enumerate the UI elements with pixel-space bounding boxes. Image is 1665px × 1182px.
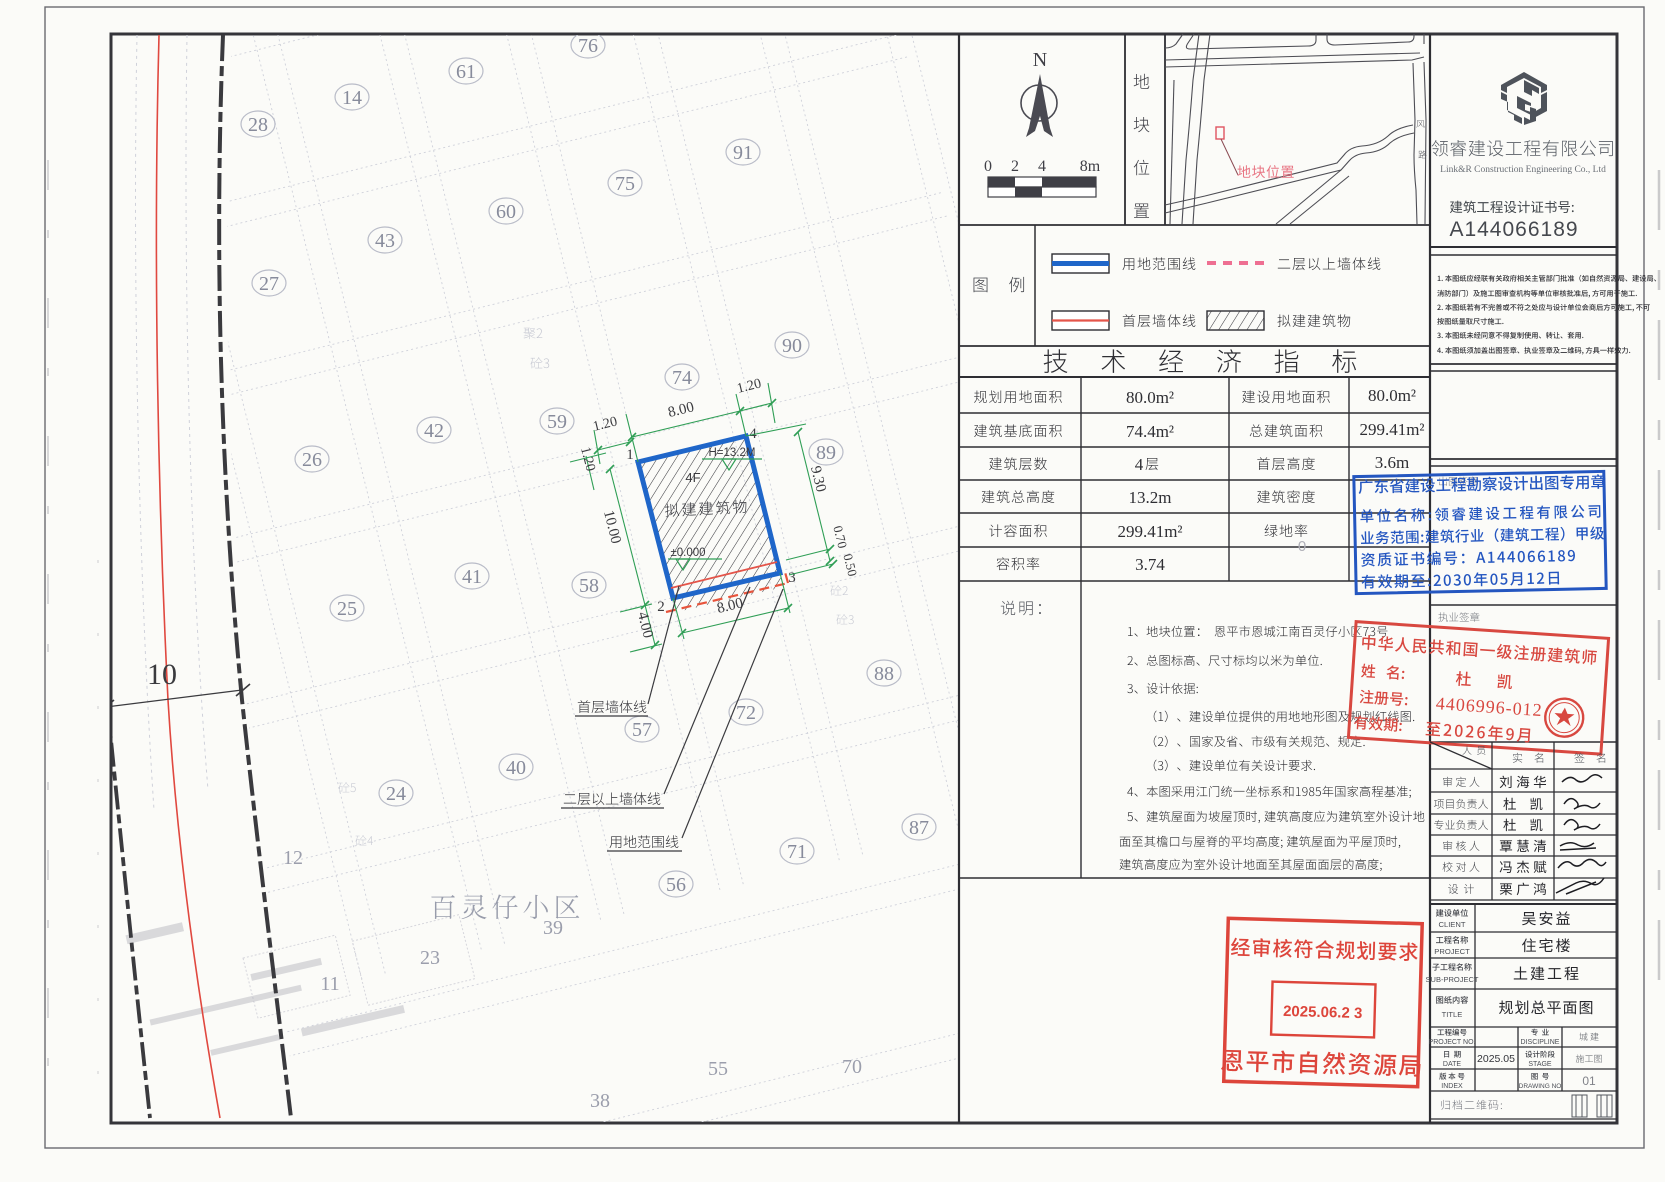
svg-text:71: 71 [787, 841, 807, 863]
svg-text:2025.06.2 3: 2025.06.2 3 [1283, 1003, 1363, 1022]
svg-text:40: 40 [506, 757, 526, 779]
svg-text:A144066189: A144066189 [1449, 218, 1578, 241]
svg-text:DATE: DATE [1443, 1061, 1461, 1068]
svg-text:41: 41 [462, 566, 482, 588]
svg-text:74.4m²: 74.4m² [1126, 422, 1174, 441]
svg-text:3.74: 3.74 [1135, 555, 1165, 574]
svg-text:4F: 4F [685, 470, 700, 485]
svg-text:72: 72 [736, 702, 756, 724]
svg-text:89: 89 [816, 442, 836, 464]
svg-text:11: 11 [320, 973, 339, 995]
svg-text:42: 42 [424, 420, 444, 442]
svg-text:2025.05: 2025.05 [1477, 1053, 1515, 1065]
svg-text:57: 57 [632, 719, 652, 741]
svg-text:0: 0 [1298, 538, 1306, 555]
svg-text:2: 2 [1011, 158, 1019, 175]
svg-text:H=13.2M: H=13.2M [709, 447, 756, 459]
svg-text:56: 56 [666, 874, 686, 896]
svg-text:76: 76 [578, 35, 598, 57]
svg-text:13.2m: 13.2m [1129, 488, 1172, 507]
svg-text:0: 0 [984, 158, 992, 175]
svg-text:SUB-PROJECT: SUB-PROJECT [1426, 975, 1479, 984]
svg-text:STAGE: STAGE [1528, 1061, 1552, 1068]
svg-text:38: 38 [590, 1090, 610, 1112]
svg-text:299.41m²: 299.41m² [1359, 420, 1424, 439]
svg-text:88: 88 [874, 663, 894, 685]
svg-text:58: 58 [579, 575, 599, 597]
svg-text:2: 2 [657, 599, 665, 615]
svg-text:75: 75 [615, 173, 635, 195]
svg-text:70: 70 [842, 1056, 862, 1078]
svg-text:Link&R Construction Engineerin: Link&R Construction Engineering Co., Ltd [1440, 165, 1606, 175]
svg-text:60: 60 [496, 201, 516, 223]
svg-text:INDEX: INDEX [1441, 1083, 1463, 1090]
svg-text:28: 28 [248, 114, 268, 136]
svg-text:3.6m: 3.6m [1375, 453, 1409, 472]
svg-text:3: 3 [788, 570, 796, 586]
svg-text:CLIENT: CLIENT [1438, 920, 1465, 929]
svg-text:91: 91 [733, 142, 753, 164]
svg-text:4: 4 [1135, 455, 1144, 474]
svg-text:DISCIPLINE: DISCIPLINE [1521, 1039, 1560, 1046]
svg-text:74: 74 [672, 367, 692, 389]
svg-text:10: 10 [147, 658, 177, 691]
svg-text:TITLE: TITLE [1442, 1010, 1463, 1019]
svg-text:59: 59 [547, 411, 567, 433]
svg-text:DRAWING NO: DRAWING NO [1519, 1083, 1562, 1090]
svg-text:N: N [1033, 49, 1047, 71]
svg-text:14: 14 [342, 87, 362, 109]
svg-text:PROJECT: PROJECT [1434, 947, 1470, 956]
svg-text:4: 4 [1038, 158, 1046, 175]
svg-text:39: 39 [543, 917, 563, 939]
svg-text:43: 43 [375, 230, 395, 252]
svg-text:27: 27 [259, 273, 279, 295]
svg-text:01: 01 [1582, 1074, 1596, 1088]
svg-text:55: 55 [708, 1058, 728, 1080]
svg-text:299.41m²: 299.41m² [1117, 522, 1182, 541]
svg-text:90: 90 [782, 335, 802, 357]
svg-text:87: 87 [909, 817, 929, 839]
svg-text:25: 25 [337, 598, 357, 620]
svg-text:80.0m²: 80.0m² [1126, 388, 1174, 407]
svg-text:80.0m²: 80.0m² [1368, 386, 1416, 405]
svg-text:8m: 8m [1080, 158, 1101, 175]
svg-text:26: 26 [302, 449, 322, 471]
svg-text:1: 1 [626, 447, 634, 463]
svg-text:23: 23 [420, 947, 440, 969]
svg-text:61: 61 [456, 61, 476, 83]
svg-text:PROJECT NO.: PROJECT NO. [1429, 1039, 1476, 1046]
svg-text:12: 12 [283, 847, 303, 869]
svg-text:24: 24 [386, 783, 406, 805]
svg-text:±0.000: ±0.000 [670, 547, 705, 559]
